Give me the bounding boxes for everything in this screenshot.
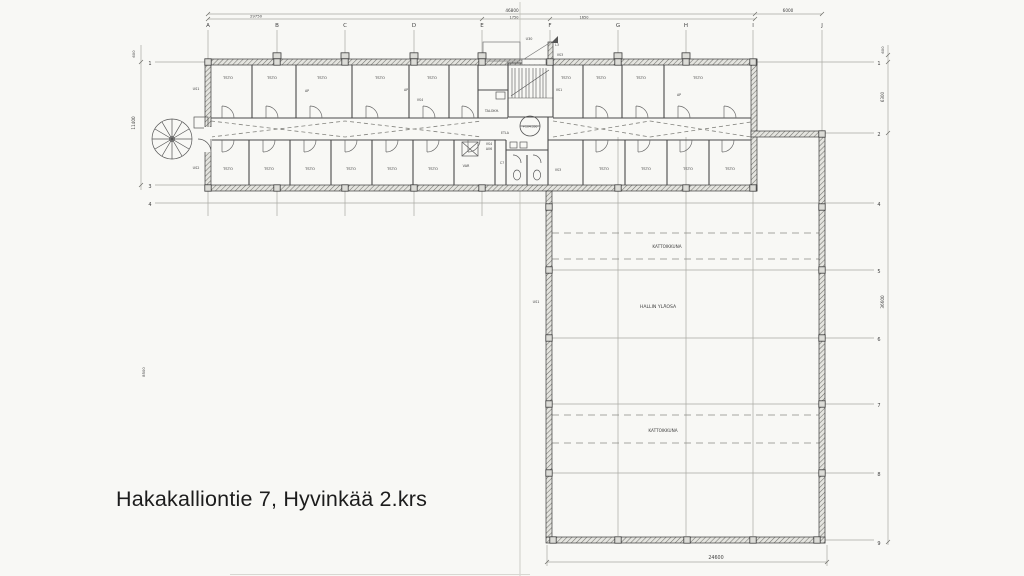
dim-36600: 36600 bbox=[880, 295, 885, 309]
grid-letter-d: D bbox=[412, 23, 416, 29]
row-label-right-7: 7 bbox=[877, 403, 880, 409]
grid-letter-e: E bbox=[480, 23, 484, 29]
interior-partitions bbox=[211, 63, 751, 185]
wall-tag-vs3-b: VS3 bbox=[555, 168, 561, 172]
wall-tag-vs3-a: VS3 bbox=[557, 53, 563, 57]
stair-core bbox=[508, 68, 553, 98]
grid-letter-i: I bbox=[752, 23, 754, 29]
dim-1750: 1750 bbox=[510, 16, 519, 20]
room-talokh: TALOKH. bbox=[484, 109, 499, 113]
hall-hallin-ylaosa: HALLIN YLÄOSA bbox=[640, 303, 677, 310]
dim-600-left: 600 bbox=[131, 50, 136, 58]
row-label-left-3: 3 bbox=[148, 184, 151, 190]
grid-letter-f: F bbox=[548, 23, 551, 29]
spiral-stair bbox=[152, 117, 212, 159]
hall-kattoikkuna-1: KATTOIKKUNA bbox=[652, 244, 681, 249]
hall-kattoikkuna-2: KATTOIKKUNA bbox=[648, 428, 677, 433]
dim-6300: 6300 bbox=[880, 91, 885, 102]
wall-tag-vs4-b: VS4 bbox=[417, 98, 423, 102]
wall-tag-us1-hall: US1 bbox=[533, 300, 540, 304]
dim-1650: 1650 bbox=[580, 16, 589, 20]
corridor-route-dashes bbox=[211, 121, 751, 137]
grid-letter-j: J bbox=[820, 23, 823, 29]
room-tsto-10: TSTO bbox=[222, 166, 233, 171]
wall-tag-l3: L3 bbox=[555, 43, 559, 47]
room-tsto-14: TSTO bbox=[386, 166, 397, 171]
tag-ap-1: AP bbox=[305, 89, 309, 93]
dim-600-right: 600 bbox=[880, 46, 885, 54]
dim-11400: 11400 bbox=[131, 116, 136, 130]
tag-ap-2: AP bbox=[404, 88, 408, 92]
dim-6000: 6000 bbox=[783, 8, 794, 13]
room-tsto-4: TSTO bbox=[374, 75, 385, 80]
row-label-right-9: 9 bbox=[877, 541, 880, 547]
room-tsto-5: TSTO bbox=[426, 75, 437, 80]
room-tsto-1: TSTO bbox=[222, 75, 233, 80]
dim-46800: 46800 bbox=[505, 8, 519, 13]
wall-tag-us2: US2 bbox=[193, 166, 200, 170]
room-tsto-17: TSTO bbox=[640, 166, 651, 171]
row-label-right-2: 2 bbox=[877, 132, 880, 138]
room-tsto-7: TSTO bbox=[595, 75, 606, 80]
row-label-right-4: 4 bbox=[877, 202, 880, 208]
row-label-left-1: 1 bbox=[148, 61, 151, 67]
grid-letter-g: G bbox=[616, 23, 620, 29]
tag-a06: A06 bbox=[486, 147, 492, 151]
dim-8500: 8500 bbox=[141, 367, 146, 377]
wall-tag-u30: U30 bbox=[526, 37, 533, 41]
room-tsto-2: TSTO bbox=[266, 75, 277, 80]
row-label-right-6: 6 bbox=[877, 337, 880, 343]
room-tsto-8: TSTO bbox=[635, 75, 646, 80]
wall-tag-vs4-a: VS4 bbox=[486, 142, 492, 146]
grid-letter-h: H bbox=[684, 23, 688, 29]
room-tsto-6: TSTO bbox=[560, 75, 571, 80]
room-tsto-15: TSTO bbox=[427, 166, 438, 171]
room-tsto-11: TSTO bbox=[263, 166, 274, 171]
room-tsto-12: TSTO bbox=[304, 166, 315, 171]
grid-letter-b: B bbox=[275, 23, 279, 29]
room-var: VAR bbox=[463, 164, 470, 168]
dim-29750: 29750 bbox=[250, 14, 263, 19]
address-caption: Hakakalliontie 7, Hyvinkää 2.krs bbox=[116, 487, 427, 512]
dim-24600: 24600 bbox=[708, 555, 723, 561]
room-tsto-13: TSTO bbox=[345, 166, 356, 171]
room-tsto-3: TSTO bbox=[316, 75, 327, 80]
room-tsto-9: TSTO bbox=[692, 75, 703, 80]
room-tsto-18: TSTO bbox=[682, 166, 693, 171]
wall-tag-vs1: VS1 bbox=[556, 88, 562, 92]
room-doors bbox=[222, 106, 736, 152]
room-etla: ETLA bbox=[501, 131, 510, 135]
grid-letter-a: A bbox=[206, 23, 210, 29]
grid-letter-c: C bbox=[343, 23, 347, 29]
row-label-left-4: 4 bbox=[148, 202, 151, 208]
room-tsto-19: TSTO bbox=[724, 166, 735, 171]
tag-c7: C7 bbox=[500, 161, 504, 165]
floor-plan-page: ABCDEFGHIJ124567891344680060002975017501… bbox=[0, 0, 1024, 576]
tag-ap-3: AP bbox=[677, 93, 681, 97]
row-label-right-5: 5 bbox=[877, 269, 880, 275]
row-label-right-8: 8 bbox=[877, 472, 880, 478]
elevation-marker: +104.350 bbox=[523, 125, 538, 129]
room-tsto-16: TSTO bbox=[598, 166, 609, 171]
wall-tag-us1: US1 bbox=[193, 87, 200, 91]
row-label-right-1: 1 bbox=[877, 61, 880, 67]
